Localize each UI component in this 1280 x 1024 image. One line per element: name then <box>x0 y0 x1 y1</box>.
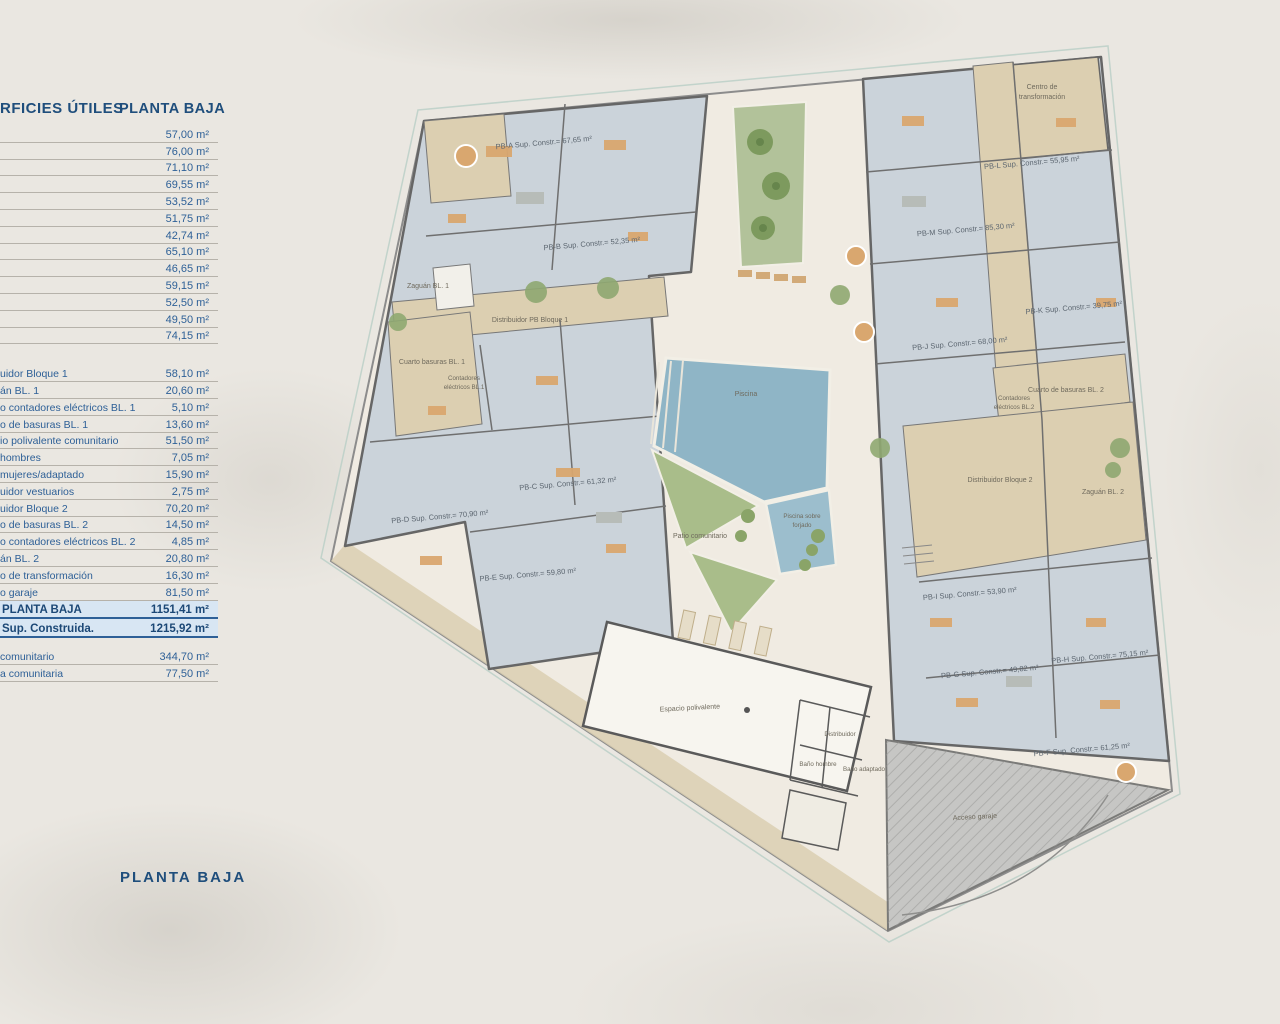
row-value: 59,15 m² <box>166 280 209 292</box>
table-row: o de basuras BL. 113,60 m² <box>0 416 218 433</box>
row-label: uidor Bloque 2 <box>0 503 68 515</box>
table-row: 74,15 m² <box>0 328 218 345</box>
row-value: 15,90 m² <box>166 469 209 481</box>
total-row: Sup. Construida.1215,92 m² <box>0 619 218 638</box>
room-label-piscina-forjado: Piscina sobre <box>783 513 821 520</box>
room-label-contadores-bl2-line2: eléctricos BL.2 <box>994 404 1035 411</box>
row-value: 1215,92 m² <box>150 623 209 635</box>
table-row: uidor vestuarios2,75 m² <box>0 483 218 500</box>
room-label-centro-transformacion: Centro de <box>1027 84 1058 91</box>
table-row: 57,00 m² <box>0 126 218 143</box>
room-label-contadores-bl1: Contadores <box>448 375 480 382</box>
row-value: 52,50 m² <box>166 297 209 309</box>
row-label: o garaje <box>0 587 38 599</box>
plan-title: PLANTA BAJA <box>120 869 246 886</box>
table-row: mujeres/adaptado15,90 m² <box>0 466 218 483</box>
row-label: o de basuras BL. 2 <box>0 519 88 531</box>
row-label: o contadores eléctricos BL. 1 <box>0 402 135 414</box>
room-label-piscina: Piscina <box>735 391 758 398</box>
row-label: uidor vestuarios <box>0 486 74 498</box>
table-row: o contadores eléctricos BL. 15,10 m² <box>0 399 218 416</box>
room-label-distribuidor: Distribuidor <box>824 731 855 738</box>
row-label: o de basuras BL. 1 <box>0 419 88 431</box>
areas-table-header: RFICIES ÚTILES PLANTA BAJA <box>0 100 218 126</box>
row-value: 51,50 m² <box>166 435 209 447</box>
table-row: uidor Bloque 270,20 m² <box>0 500 218 517</box>
table-row: o contadores eléctricos BL. 24,85 m² <box>0 533 218 550</box>
row-label: o contadores eléctricos BL. 2 <box>0 536 135 548</box>
row-value: 77,50 m² <box>166 668 209 680</box>
row-label: o de transformación <box>0 570 93 582</box>
community-areas-group: comunitario344,70 m² a comunitaria77,50 … <box>0 649 218 683</box>
row-value: 20,80 m² <box>166 553 209 565</box>
room-label-zaguan-bl2: Zaguán BL. 2 <box>1082 489 1124 496</box>
row-value: 49,50 m² <box>166 314 209 326</box>
table-row: án BL. 120,60 m² <box>0 382 218 399</box>
row-value: 13,60 m² <box>166 419 209 431</box>
row-value: 1151,41 m² <box>151 604 209 616</box>
row-value: 20,60 m² <box>166 385 209 397</box>
table-row: uidor Bloque 158,10 m² <box>0 365 218 382</box>
row-value: 81,50 m² <box>166 587 209 599</box>
table-row: 71,10 m² <box>0 160 218 177</box>
row-value: 69,55 m² <box>166 179 209 191</box>
room-label-distribuidor-pb-bloque1: Distribuidor PB Bloque 1 <box>492 317 568 324</box>
row-value: 46,65 m² <box>166 263 209 275</box>
table-row: a comunitaria77,50 m² <box>0 665 218 682</box>
table-row: io polivalente comunitario51,50 m² <box>0 433 218 450</box>
table-title: RFICIES ÚTILES <box>0 100 124 117</box>
table-row: hombres7,05 m² <box>0 449 218 466</box>
room-label-cuarto-basuras-bl2: Cuarto de basuras BL. 2 <box>1028 387 1104 394</box>
row-value: 70,20 m² <box>166 503 209 515</box>
table-row: 65,10 m² <box>0 244 218 261</box>
table-row: 69,55 m² <box>0 176 218 193</box>
table-row: 53,52 m² <box>0 193 218 210</box>
table-row: o de transformación16,30 m² <box>0 567 218 584</box>
table-row: 42,74 m² <box>0 227 218 244</box>
row-value: 71,10 m² <box>166 162 209 174</box>
room-label-bano-hombre: Baño hombre <box>799 761 837 768</box>
service-rooms-block-1 <box>388 312 482 436</box>
room-label-centro-transformacion-line2: transformación <box>1019 94 1065 101</box>
page: PB-A Sup. Constr.= 67,65 m² PB-B Sup. Co… <box>0 0 1280 1024</box>
row-label: mujeres/adaptado <box>0 469 84 481</box>
table-row: 51,75 m² <box>0 210 218 227</box>
table-row: o de basuras BL. 214,50 m² <box>0 517 218 534</box>
room-label-distribuidor-bloque2: Distribuidor Bloque 2 <box>968 477 1033 484</box>
room-label-piscina-forjado-line2: forjado <box>793 522 812 529</box>
room-label-cuarto-basuras-bl1: Cuarto basuras BL. 1 <box>399 359 465 366</box>
row-label: án BL. 2 <box>0 553 39 565</box>
row-label: comunitario <box>0 651 54 663</box>
row-value: 58,10 m² <box>166 368 209 380</box>
table-row: comunitario344,70 m² <box>0 649 218 666</box>
table-row: 59,15 m² <box>0 277 218 294</box>
row-value: 74,15 m² <box>166 330 209 342</box>
room-label-contadores-bl2: Contadores <box>998 395 1030 402</box>
total-row: PLANTA BAJA1151,41 m² <box>0 601 218 620</box>
row-value: 14,50 m² <box>166 519 209 531</box>
room-label-zaguan-bl1: Zaguán BL. 1 <box>407 283 449 290</box>
table-row: o garaje81,50 m² <box>0 584 218 601</box>
row-label: io polivalente comunitario <box>0 435 118 447</box>
totals-group: PLANTA BAJA1151,41 m² Sup. Construida.12… <box>0 601 218 638</box>
row-value: 51,75 m² <box>166 213 209 225</box>
room-label-contadores-bl1-line2: eléctricos BL.1 <box>444 384 485 391</box>
column-dot <box>744 707 750 713</box>
row-value: 76,00 m² <box>166 146 209 158</box>
table-row: 49,50 m² <box>0 311 218 328</box>
row-value: 344,70 m² <box>159 651 209 663</box>
room-label-patio-comunitario: Patio comunitario <box>673 533 727 540</box>
row-value: 42,74 m² <box>166 230 209 242</box>
row-label: Sup. Construida. <box>2 623 94 635</box>
areas-table: RFICIES ÚTILES PLANTA BAJA 57,00 m² 76,0… <box>0 100 218 682</box>
table-row: 46,65 m² <box>0 260 218 277</box>
row-value: 53,52 m² <box>166 196 209 208</box>
row-value: 7,05 m² <box>172 452 209 464</box>
row-value: 65,10 m² <box>166 246 209 258</box>
row-label: PLANTA BAJA <box>2 604 82 616</box>
row-label: uidor Bloque 1 <box>0 368 68 380</box>
row-value: 4,85 m² <box>172 536 209 548</box>
unit-areas-group: 57,00 m² 76,00 m² 71,10 m² 69,55 m² 53,5… <box>0 126 218 344</box>
table-row: án BL. 220,80 m² <box>0 550 218 567</box>
row-label: án BL. 1 <box>0 385 39 397</box>
row-value: 57,00 m² <box>166 129 209 141</box>
table-column-title: PLANTA BAJA <box>119 101 225 117</box>
table-row: 52,50 m² <box>0 294 218 311</box>
table-row: 76,00 m² <box>0 143 218 160</box>
row-value: 16,30 m² <box>166 570 209 582</box>
row-value: 2,75 m² <box>172 486 209 498</box>
common-areas-group: uidor Bloque 158,10 m² án BL. 120,60 m² … <box>0 365 218 600</box>
row-label: a comunitaria <box>0 668 63 680</box>
row-label: hombres <box>0 452 41 464</box>
room-label-bano-adaptado: Baño adaptado <box>843 766 886 773</box>
row-value: 5,10 m² <box>172 402 209 414</box>
